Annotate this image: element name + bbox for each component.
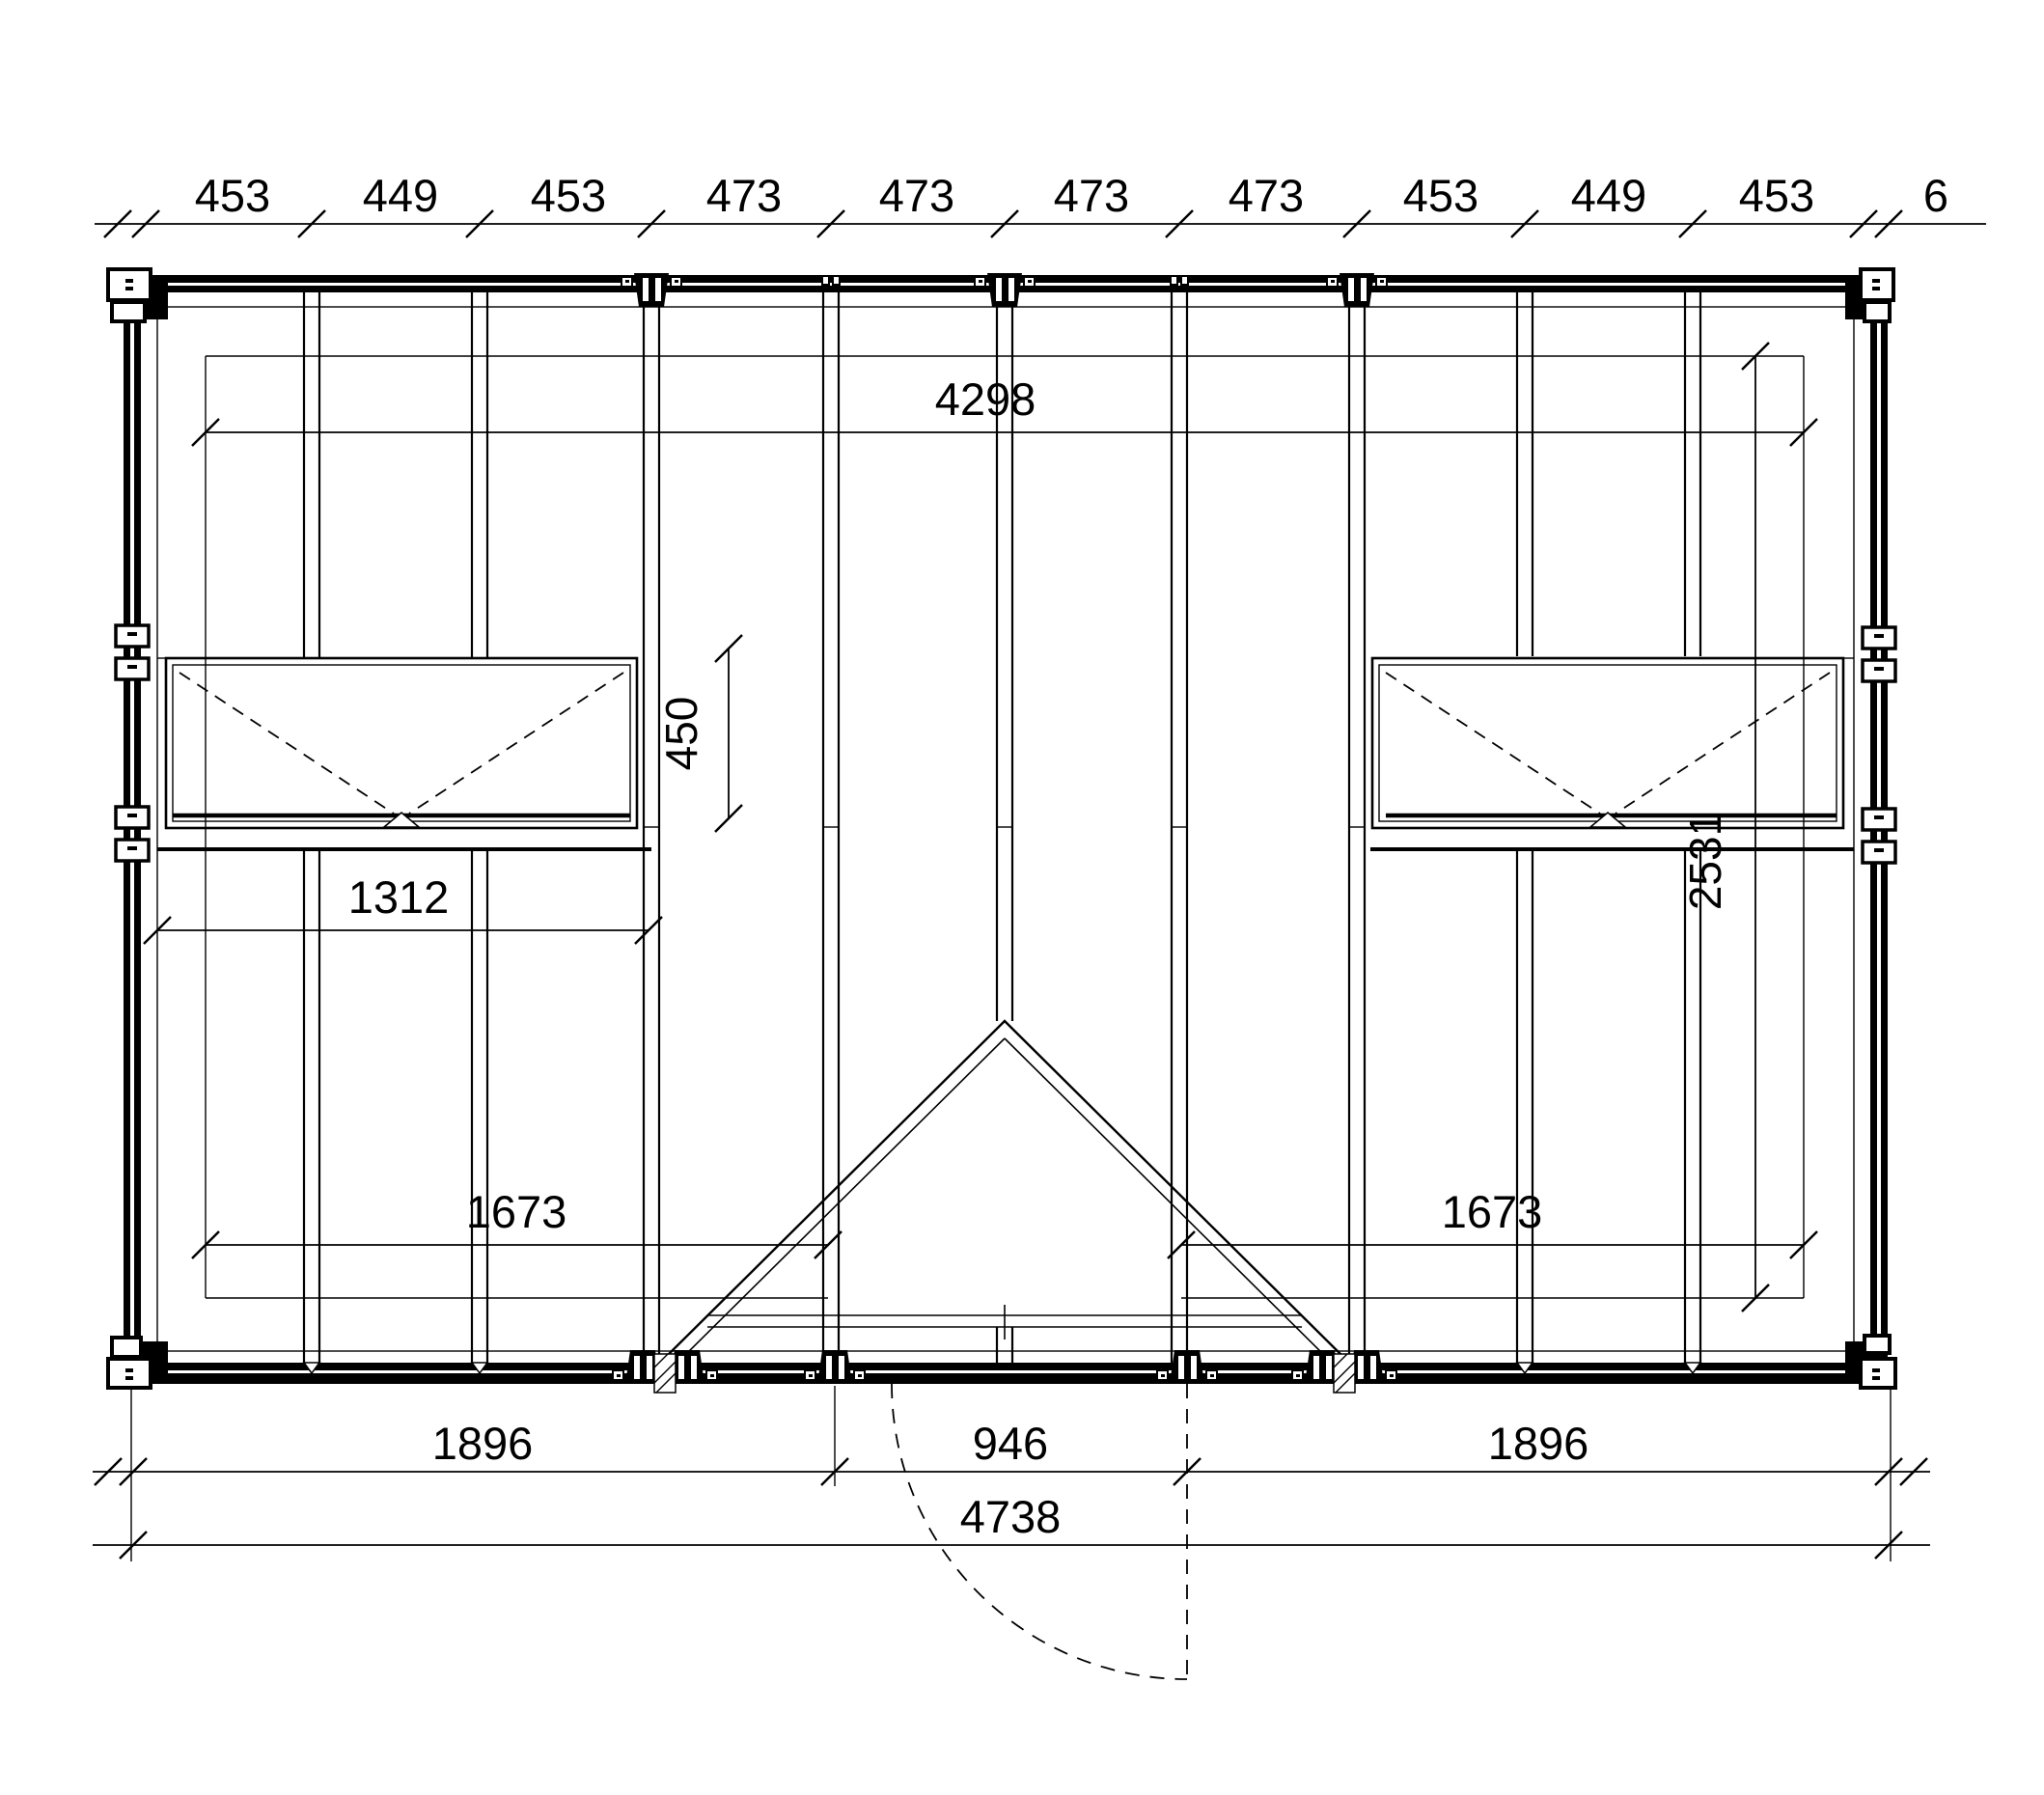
right-window <box>1372 658 1843 828</box>
gable-triangle <box>660 1021 1349 1363</box>
stud-4 <box>823 292 839 1363</box>
dim-label-top-4: 473 <box>706 170 782 221</box>
dimension-right-span: 1673 <box>1168 1186 1817 1258</box>
stud-5 <box>1172 292 1187 1363</box>
stud-3 <box>644 292 659 1363</box>
dim-label-bottom-left: 1896 <box>432 1418 534 1469</box>
ridge-stud <box>997 292 1012 1363</box>
top-dimension-chain: 453 449 453 473 473 473 473 453 449 453 … <box>95 170 1986 237</box>
wall-connectors <box>116 273 1895 1393</box>
dimension-window-width: 1312 <box>144 871 662 944</box>
left-window-frame <box>166 658 637 828</box>
dim-label-window-height: 450 <box>656 697 706 771</box>
bottom-wall <box>160 1363 1847 1370</box>
building-walls <box>124 275 1888 1384</box>
left-wall <box>124 318 130 1343</box>
dim-label-top-11: 6 <box>1923 170 1948 221</box>
dim-label-top-8: 453 <box>1403 170 1478 221</box>
dim-label-top-1: 453 <box>195 170 270 221</box>
right-window-opening-dash <box>1386 673 1600 814</box>
dim-label-top-9: 449 <box>1571 170 1646 221</box>
dimension-panel-depth: 2531 <box>1680 343 1769 1312</box>
dim-label-window-width: 1312 <box>348 871 450 923</box>
dim-label-left-span: 1673 <box>466 1186 567 1237</box>
dim-label-top-10: 453 <box>1739 170 1814 221</box>
dim-label-top-2: 449 <box>363 170 438 221</box>
dimension-window-height: 450 <box>656 635 742 832</box>
dim-label-panel-depth: 2531 <box>1680 812 1730 910</box>
framing-plan-page: 453 449 453 473 473 473 473 453 449 453 … <box>0 0 2044 1795</box>
dim-label-door-width: 946 <box>973 1418 1048 1469</box>
dim-label-right-span: 1673 <box>1442 1186 1543 1237</box>
left-window <box>166 658 637 828</box>
dimension-panel-width: 4298 <box>192 373 1817 446</box>
framing-plan-drawing: 453 449 453 473 473 473 473 453 449 453 … <box>0 0 2044 1795</box>
right-window-frame <box>1372 658 1843 828</box>
stud-6 <box>1349 292 1365 1363</box>
rafter-inner-right <box>1005 1038 1332 1363</box>
dim-label-top-3: 453 <box>531 170 606 221</box>
dimension-left-span: 1673 <box>192 1186 842 1258</box>
dim-label-top-7: 473 <box>1229 170 1304 221</box>
rafter-inner-left <box>677 1038 1005 1363</box>
dim-label-panel-width: 4298 <box>935 373 1036 425</box>
dim-label-bottom-right: 1896 <box>1488 1418 1589 1469</box>
dim-label-top-5: 473 <box>879 170 954 221</box>
bottom-dimension-chains: 1896 946 1896 4738 <box>93 1386 1930 1561</box>
dim-label-top-6: 473 <box>1054 170 1129 221</box>
left-window-opening-dash <box>180 673 394 814</box>
dim-label-total-width: 4738 <box>960 1491 1062 1542</box>
